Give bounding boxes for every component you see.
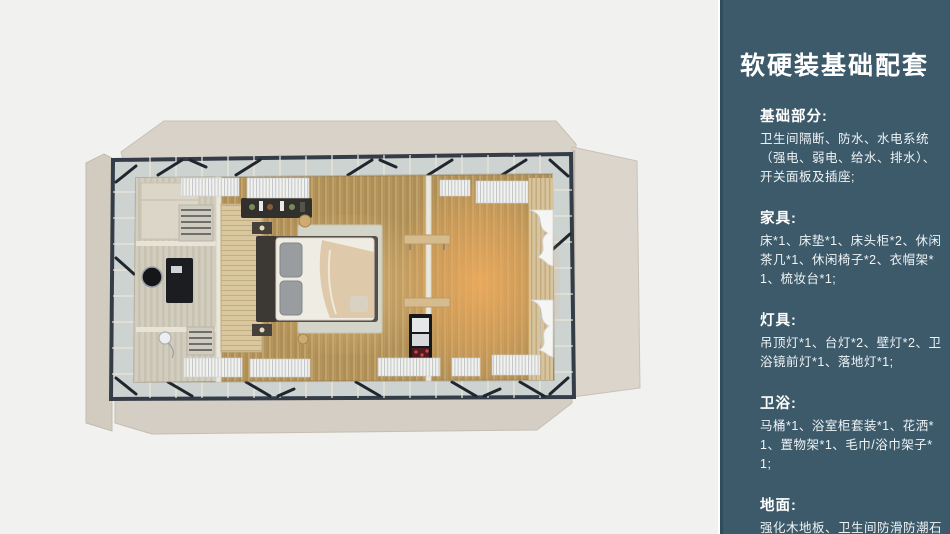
section-heading: 地面: — [760, 494, 936, 515]
bathroom-partition-wall — [216, 177, 221, 382]
section-heading: 家具: — [760, 207, 936, 228]
plant-pot — [249, 204, 255, 210]
headboard — [256, 236, 276, 322]
section-body: 卫生间隔断、防水、水电系统（强电、弱电、给水、排水）、开关面板及插座; — [760, 130, 942, 187]
blind-panel — [250, 359, 310, 377]
section-furniture: 家具: 床*1、床垫*1、床头柜*2、休闲茶几*1、休闲椅子*2、衣帽架*1、梳… — [760, 207, 936, 289]
throw-pillow — [350, 296, 368, 312]
bathroom — [134, 177, 221, 382]
basket — [298, 334, 308, 344]
section-heading: 卫浴: — [760, 392, 936, 413]
left-flap — [86, 154, 112, 431]
blind-panel — [184, 358, 242, 377]
section-heading: 灯具: — [760, 309, 936, 330]
section-bathroom: 卫浴: 马桶*1、浴室柜套装*1、花洒*1、置物架*1、毛巾/浴巾架子*1; — [760, 392, 936, 474]
blind-panel — [247, 178, 309, 198]
blind-panel — [476, 181, 528, 203]
wall-shelf — [404, 235, 450, 244]
section-body: 强化木地板、卫生间防滑防潮石塑板; — [760, 519, 942, 534]
shower-head — [159, 332, 171, 344]
section-flooring: 地面: 强化木地板、卫生间防滑防潮石塑板; — [760, 494, 936, 534]
blind-panel — [440, 180, 470, 196]
hanging-rack — [241, 198, 312, 218]
window-wall — [529, 178, 553, 380]
right-flap — [572, 147, 640, 397]
section-basics: 基础部分: 卫生间隔断、防水、水电系统（强电、弱电、给水、排水）、开关面板及插座… — [760, 105, 936, 187]
section-heading: 基础部分: — [760, 105, 936, 126]
section-body: 马桶*1、浴室柜套装*1、花洒*1、置物架*1、毛巾/浴巾架子*1; — [760, 417, 942, 474]
info-panel: 软硬装基础配套 基础部分: 卫生间隔断、防水、水电系统（强电、弱电、给水、排水）… — [718, 0, 950, 534]
towel-radiator-bottom — [187, 327, 214, 355]
washbasin — [171, 266, 182, 273]
pillow — [280, 281, 302, 315]
section-body: 吊顶灯*1、台灯*2、壁灯*2、卫浴镜前灯*1、落地灯*1; — [760, 334, 942, 372]
floorplan-svg — [0, 0, 718, 534]
blind-panel — [452, 358, 480, 376]
section-body: 床*1、床垫*1、床头柜*2、休闲茶几*1、休闲椅子*2、衣帽架*1、梳妆台*1… — [760, 232, 942, 289]
bathroom-shelf-top — [136, 241, 218, 246]
vanity-mirror — [142, 267, 162, 287]
table-lamp — [260, 328, 265, 333]
washbasin-vanity — [166, 258, 193, 303]
panel-title: 软硬装基础配套 — [740, 46, 936, 82]
table-lamp — [260, 226, 265, 231]
pillow — [280, 243, 302, 277]
blind-panel — [492, 355, 540, 375]
floorplan-render — [0, 0, 718, 534]
slide: 软硬装基础配套 基础部分: 卫生间隔断、防水、水电系统（强电、弱电、给水、排水）… — [0, 0, 950, 534]
towel-radiator-top — [179, 205, 213, 241]
blind-panel — [378, 358, 440, 376]
section-lighting: 灯具: 吊顶灯*1、台灯*2、壁灯*2、卫浴镜前灯*1、落地灯*1; — [760, 309, 936, 372]
blind-panel — [181, 178, 239, 196]
bottom-flap — [115, 396, 572, 434]
wall-shelf — [404, 298, 450, 307]
basket — [299, 215, 311, 227]
